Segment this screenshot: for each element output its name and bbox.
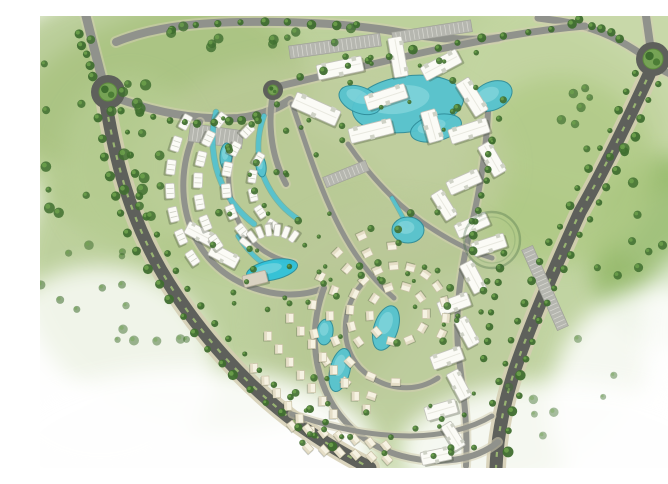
masterplan-map [40, 16, 668, 468]
masterplan-figure[interactable] [40, 16, 668, 468]
